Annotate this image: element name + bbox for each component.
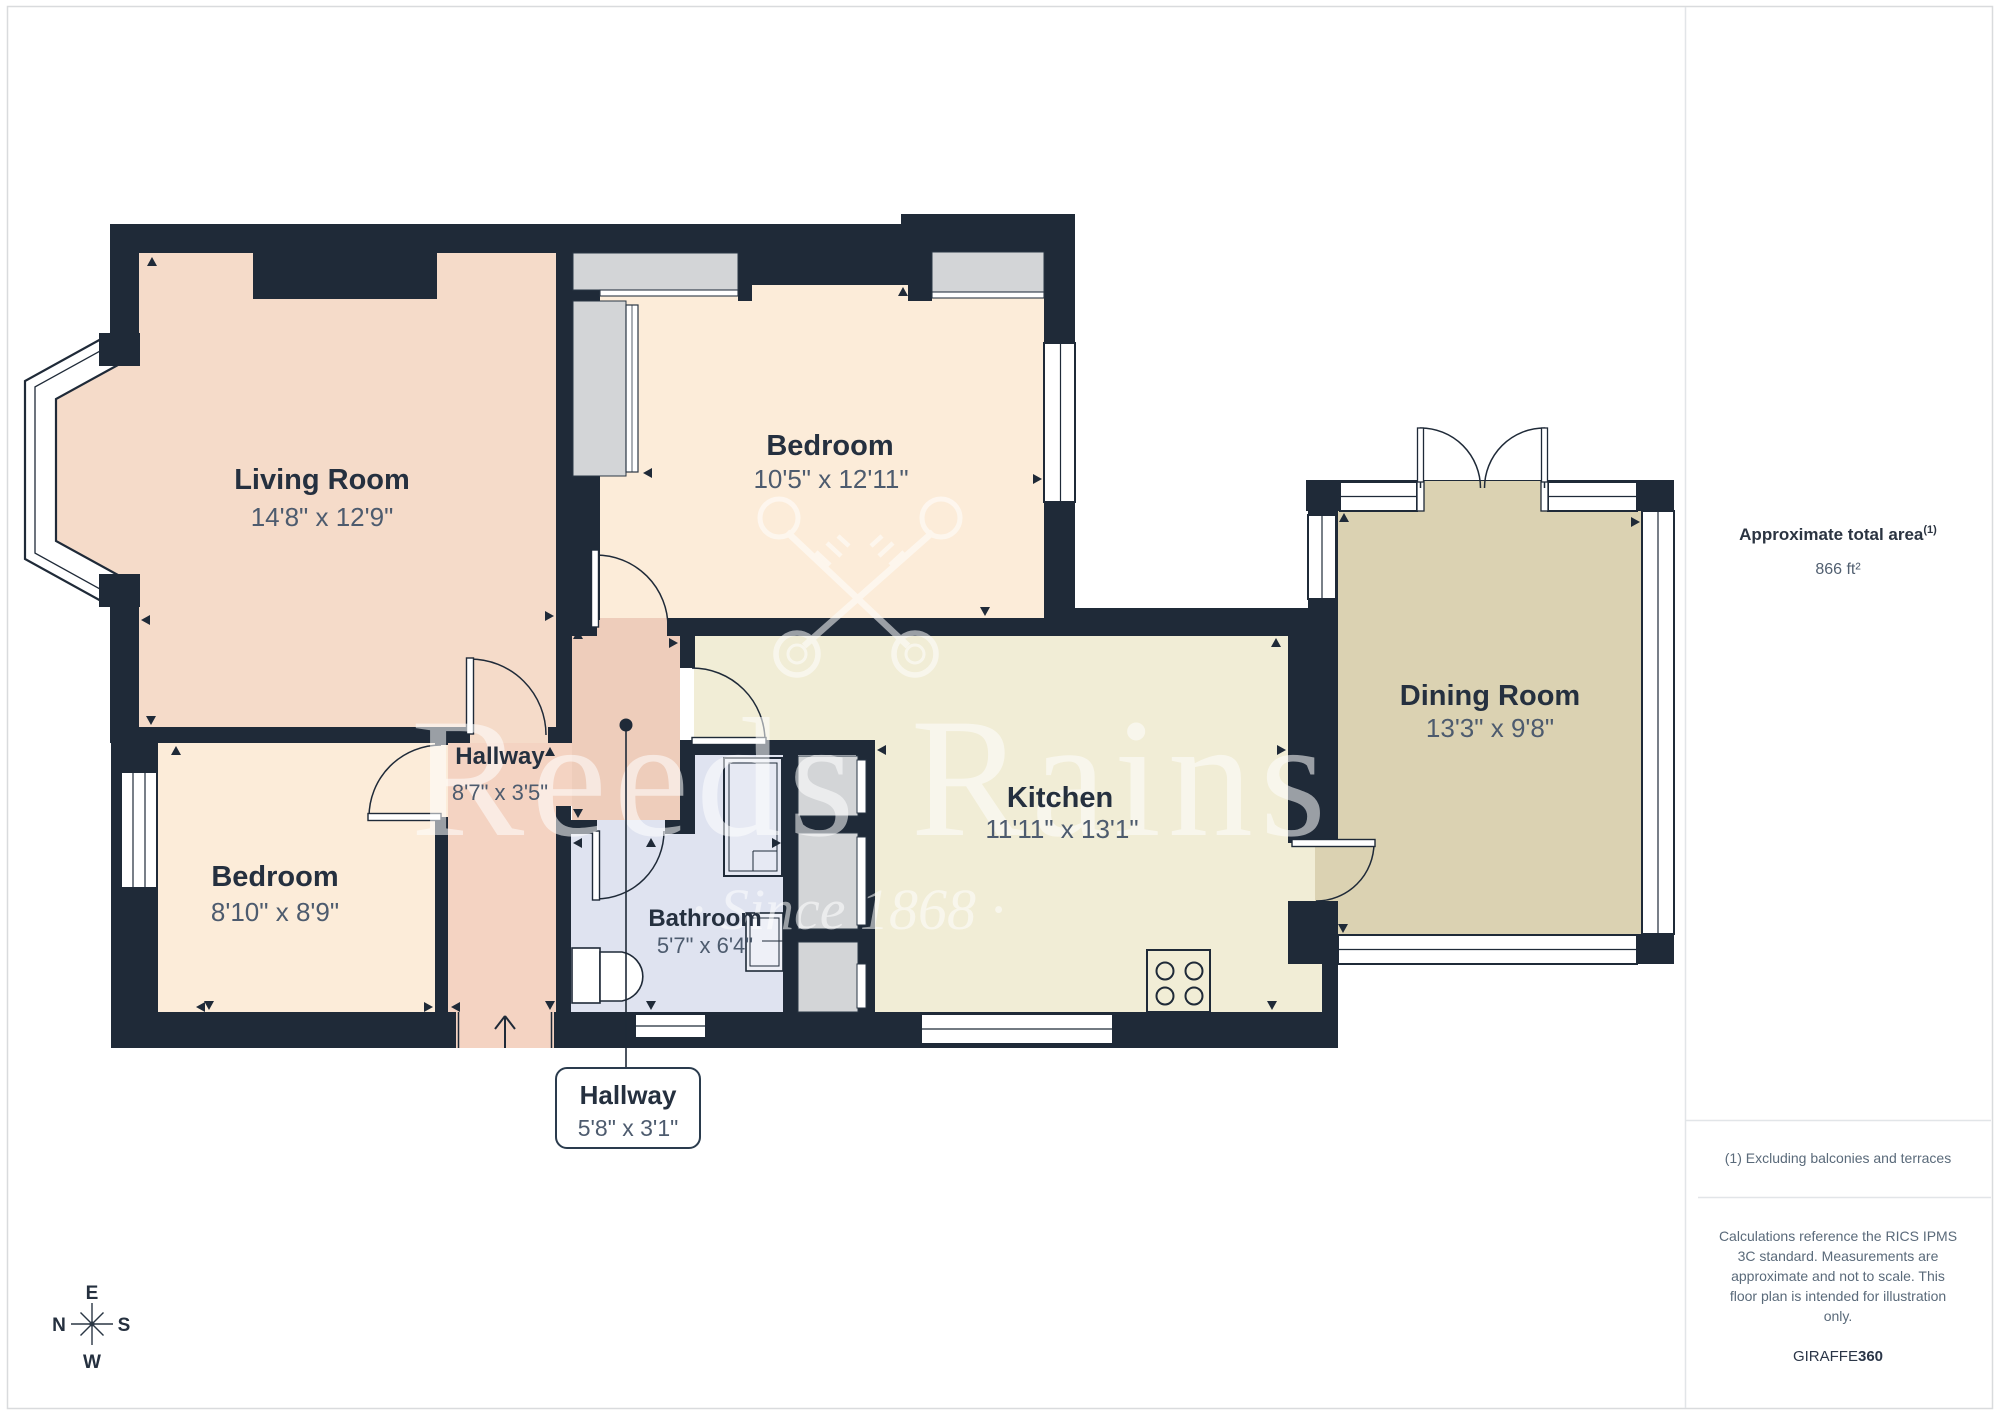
svg-text:Bathroom: Bathroom xyxy=(648,905,761,932)
svg-text:11'11" x 13'1": 11'11" x 13'1" xyxy=(985,814,1138,844)
svg-text:866 ft²: 866 ft² xyxy=(1815,561,1861,578)
svg-text:14'8" x 12'9": 14'8" x 12'9" xyxy=(251,502,394,532)
svg-text:8'7" x 3'5": 8'7" x 3'5" xyxy=(452,780,548,805)
svg-text:Approximate total area(1): Approximate total area(1) xyxy=(1739,524,1937,544)
svg-text:Reeds Rains: Reeds Rains xyxy=(411,684,1333,872)
svg-text:approximate and not to scale.: approximate and not to scale. This xyxy=(1731,1268,1945,1284)
svg-text:5'7" x 6'4": 5'7" x 6'4" xyxy=(657,933,753,958)
svg-text:5'8" x 3'1": 5'8" x 3'1" xyxy=(578,1115,679,1141)
svg-text:Living Room: Living Room xyxy=(234,464,410,496)
svg-text:E: E xyxy=(86,1283,99,1304)
svg-text:Bedroom: Bedroom xyxy=(211,861,338,893)
svg-text:Hallway: Hallway xyxy=(455,743,545,770)
svg-text:N: N xyxy=(52,1315,66,1336)
svg-text:8'10" x 8'9": 8'10" x 8'9" xyxy=(211,897,339,927)
svg-text:13'3" x 9'8": 13'3" x 9'8" xyxy=(1426,713,1554,743)
svg-text:S: S xyxy=(118,1315,131,1336)
svg-text:Kitchen: Kitchen xyxy=(1007,782,1113,814)
svg-text:Bedroom: Bedroom xyxy=(766,430,893,462)
svg-text:floor plan is intended for ill: floor plan is intended for illustration xyxy=(1730,1288,1946,1304)
svg-text:GIRAFFE360: GIRAFFE360 xyxy=(1793,1348,1883,1365)
svg-text:(1) Excluding balconies and te: (1) Excluding balconies and terraces xyxy=(1725,1150,1951,1166)
svg-text:W: W xyxy=(83,1352,101,1373)
svg-text:Dining Room: Dining Room xyxy=(1400,680,1580,712)
svg-text:only.: only. xyxy=(1824,1308,1853,1324)
svg-text:3C standard. Measurements are: 3C standard. Measurements are xyxy=(1738,1248,1939,1264)
svg-text:Hallway: Hallway xyxy=(580,1080,677,1110)
svg-text:Calculations reference the RIC: Calculations reference the RICS IPMS xyxy=(1719,1228,1957,1244)
svg-text:10'5" x 12'11": 10'5" x 12'11" xyxy=(753,464,908,494)
